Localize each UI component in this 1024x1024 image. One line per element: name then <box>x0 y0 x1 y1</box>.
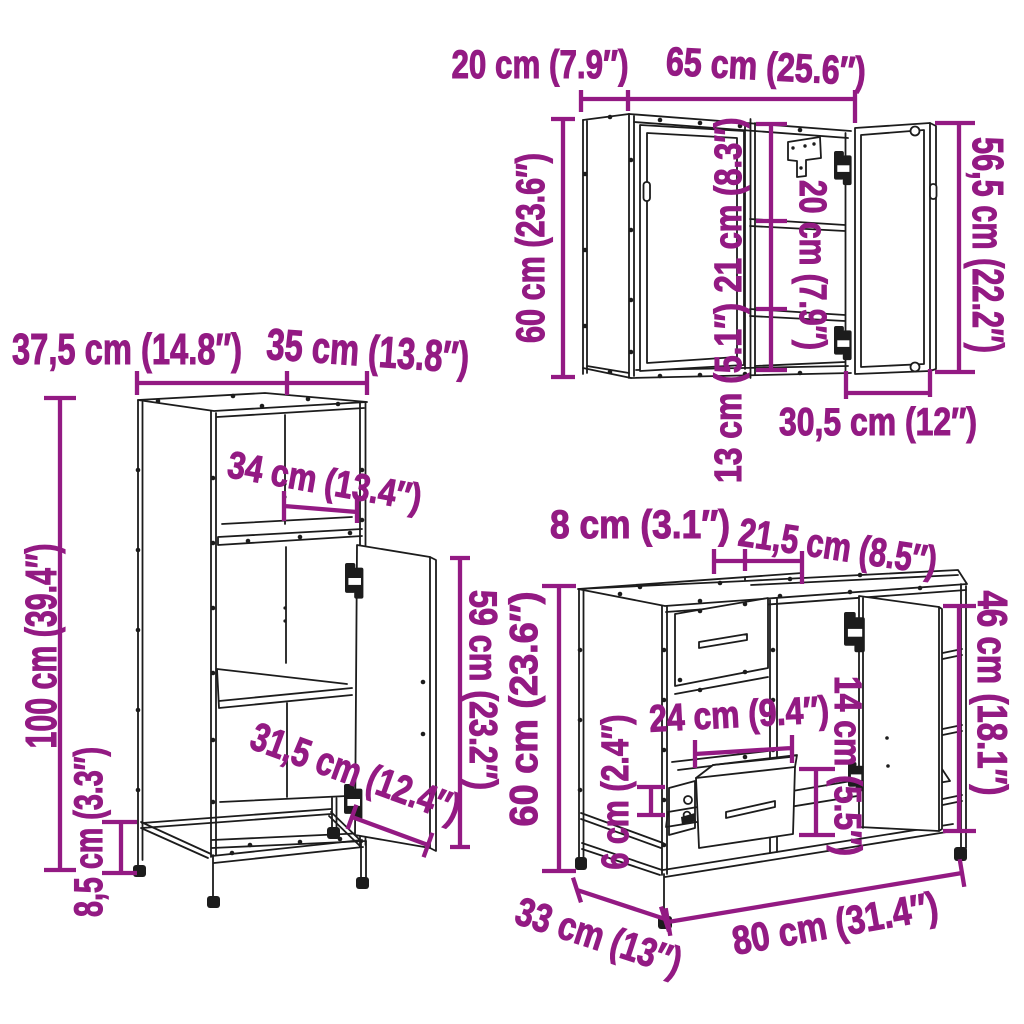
svg-text:100 cm (39.4″): 100 cm (39.4″) <box>17 544 66 749</box>
svg-text:14 cm (5.5″): 14 cm (5.5″) <box>826 676 868 856</box>
svg-text:8 cm (3.1″): 8 cm (3.1″) <box>550 503 730 547</box>
svg-text:59 cm (23.2″): 59 cm (23.2″) <box>461 590 504 790</box>
svg-text:56,5 cm (22.2″): 56,5 cm (22.2″) <box>963 137 1012 353</box>
svg-text:8,5 cm (3.3″): 8,5 cm (3.3″) <box>67 747 111 917</box>
svg-text:30,5 cm (12″): 30,5 cm (12″) <box>779 401 977 444</box>
svg-text:6 cm (2.4″): 6 cm (2.4″) <box>595 715 637 870</box>
svg-text:13 cm (5.1″): 13 cm (5.1″) <box>708 303 750 483</box>
svg-text:20 cm (7.9″): 20 cm (7.9″) <box>791 180 833 350</box>
svg-text:37,5 cm (14.8″): 37,5 cm (14.8″) <box>12 325 242 374</box>
svg-text:60 cm (23.6″): 60 cm (23.6″) <box>503 592 546 827</box>
svg-text:21 cm (8.3″): 21 cm (8.3″) <box>708 118 750 293</box>
svg-text:46 cm (18.1″): 46 cm (18.1″) <box>969 591 1016 796</box>
svg-text:60 cm (23.6″): 60 cm (23.6″) <box>509 153 553 343</box>
svg-text:20 cm (7.9″): 20 cm (7.9″) <box>452 43 629 87</box>
